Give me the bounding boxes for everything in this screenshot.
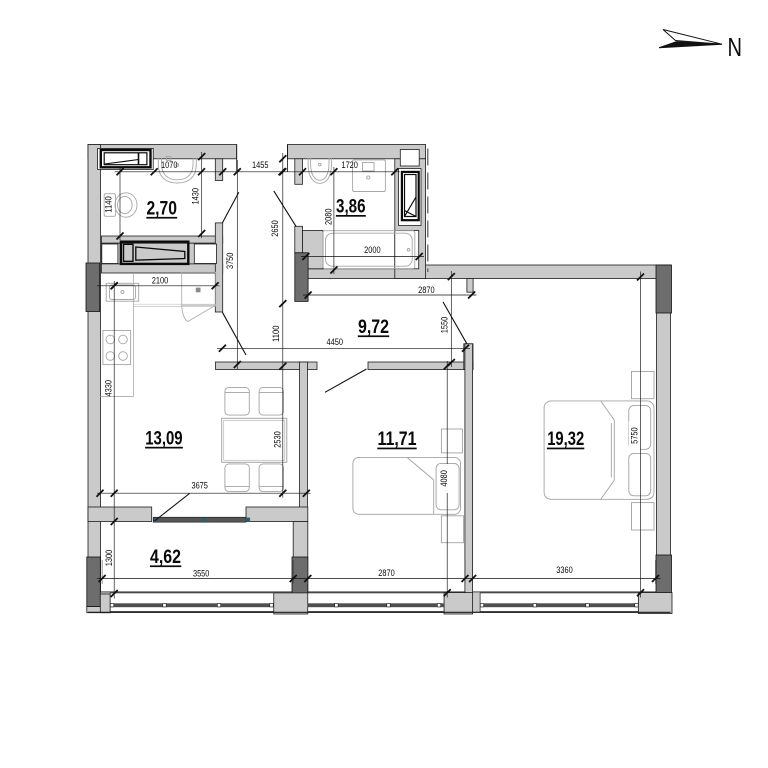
svg-text:5750: 5750 — [629, 427, 639, 444]
svg-text:3675: 3675 — [191, 480, 208, 490]
svg-text:2870: 2870 — [418, 285, 435, 295]
svg-text:9,72: 9,72 — [358, 317, 389, 338]
svg-text:2,70: 2,70 — [146, 199, 177, 220]
svg-text:4450: 4450 — [327, 337, 344, 347]
svg-text:3360: 3360 — [556, 565, 573, 575]
svg-text:13,09: 13,09 — [145, 428, 182, 449]
svg-text:1455: 1455 — [252, 160, 269, 170]
svg-text:4080: 4080 — [439, 470, 449, 487]
svg-text:11,71: 11,71 — [378, 429, 417, 450]
svg-text:2000: 2000 — [364, 245, 381, 255]
svg-text:4330: 4330 — [104, 380, 114, 397]
svg-text:2870: 2870 — [378, 568, 395, 578]
svg-text:1300: 1300 — [104, 550, 114, 567]
svg-text:2100: 2100 — [152, 276, 169, 286]
svg-text:3750: 3750 — [225, 253, 235, 270]
svg-text:2530: 2530 — [272, 431, 282, 448]
svg-text:1430: 1430 — [191, 188, 201, 205]
svg-text:2650: 2650 — [270, 220, 280, 237]
svg-text:N: N — [728, 32, 743, 62]
svg-text:1720: 1720 — [341, 160, 358, 170]
svg-text:2080: 2080 — [324, 208, 334, 225]
svg-text:1100: 1100 — [271, 325, 281, 342]
svg-text:4,62: 4,62 — [150, 547, 181, 568]
svg-text:1550: 1550 — [440, 317, 450, 334]
svg-text:3550: 3550 — [193, 569, 210, 579]
svg-text:1070: 1070 — [161, 160, 178, 170]
svg-text:19,32: 19,32 — [547, 429, 584, 450]
svg-text:1140: 1140 — [103, 196, 113, 213]
svg-text:3,86: 3,86 — [336, 197, 366, 218]
